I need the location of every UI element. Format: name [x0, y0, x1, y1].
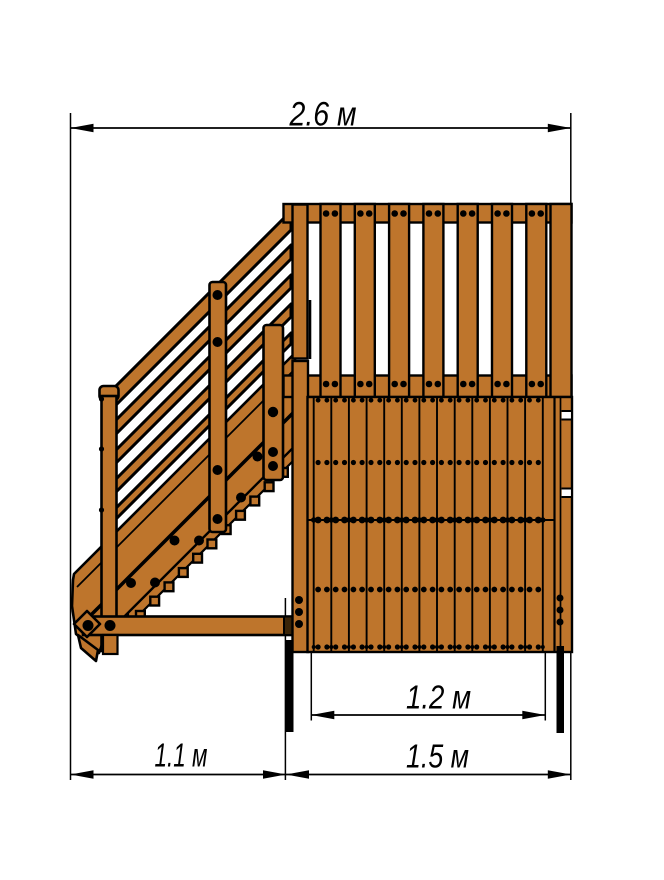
- svg-text:1.1 м: 1.1 м: [155, 737, 208, 774]
- svg-text:1.5 м: 1.5 м: [406, 738, 469, 775]
- svg-text:1.2 м: 1.2 м: [406, 679, 471, 716]
- svg-text:2.6 м: 2.6 м: [289, 96, 357, 134]
